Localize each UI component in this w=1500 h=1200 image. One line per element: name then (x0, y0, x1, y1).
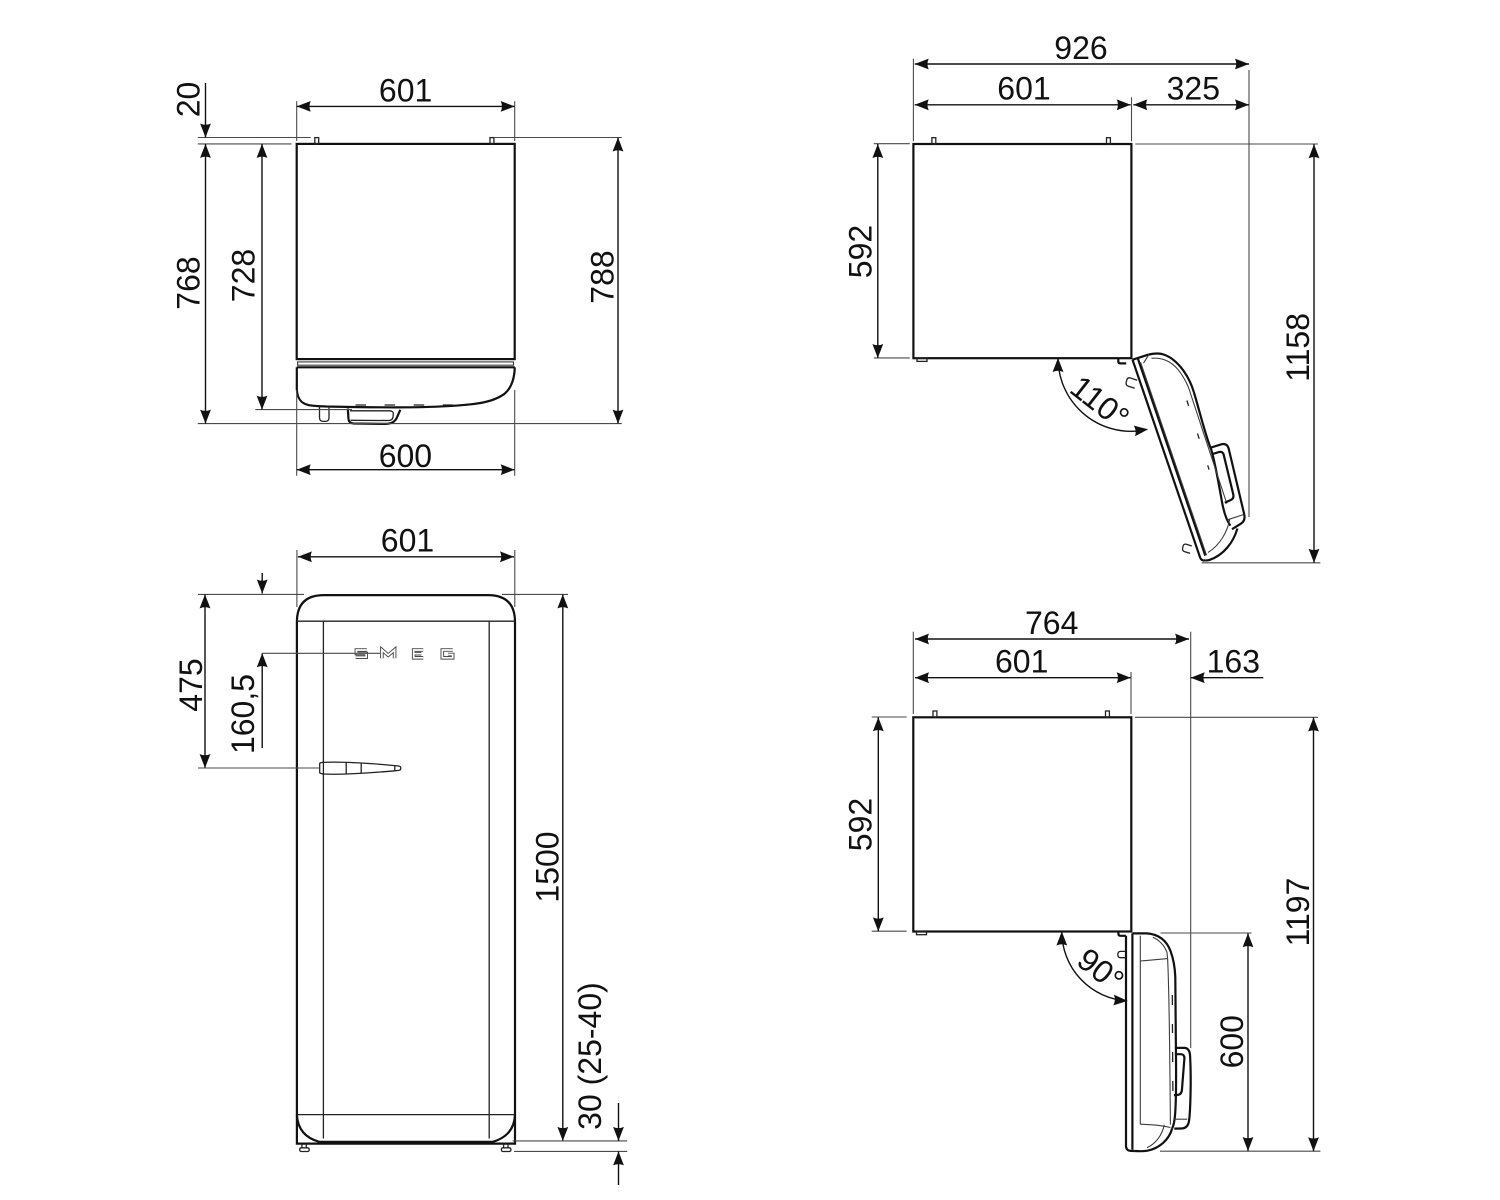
svg-text:160,5: 160,5 (225, 674, 261, 754)
svg-text:764: 764 (1025, 605, 1078, 641)
svg-text:601: 601 (379, 73, 432, 109)
svg-text:592: 592 (843, 225, 879, 278)
svg-text:30 (25-40): 30 (25-40) (572, 982, 608, 1130)
svg-text:601: 601 (995, 643, 1048, 679)
svg-text:926: 926 (1054, 30, 1107, 66)
svg-text:1158: 1158 (1280, 313, 1316, 382)
svg-text:592: 592 (842, 798, 878, 851)
svg-text:1500: 1500 (529, 831, 565, 902)
svg-text:475: 475 (173, 658, 209, 711)
svg-text:325: 325 (1167, 71, 1220, 107)
svg-text:601: 601 (381, 523, 434, 559)
svg-text:728: 728 (225, 249, 261, 302)
svg-text:601: 601 (997, 71, 1050, 107)
svg-text:1197: 1197 (1280, 878, 1316, 947)
svg-text:768: 768 (170, 256, 206, 309)
svg-text:600: 600 (379, 438, 432, 474)
svg-text:600: 600 (1214, 1015, 1250, 1068)
svg-text:20: 20 (170, 82, 206, 118)
svg-text:788: 788 (584, 250, 620, 303)
svg-text:163: 163 (1207, 643, 1260, 679)
